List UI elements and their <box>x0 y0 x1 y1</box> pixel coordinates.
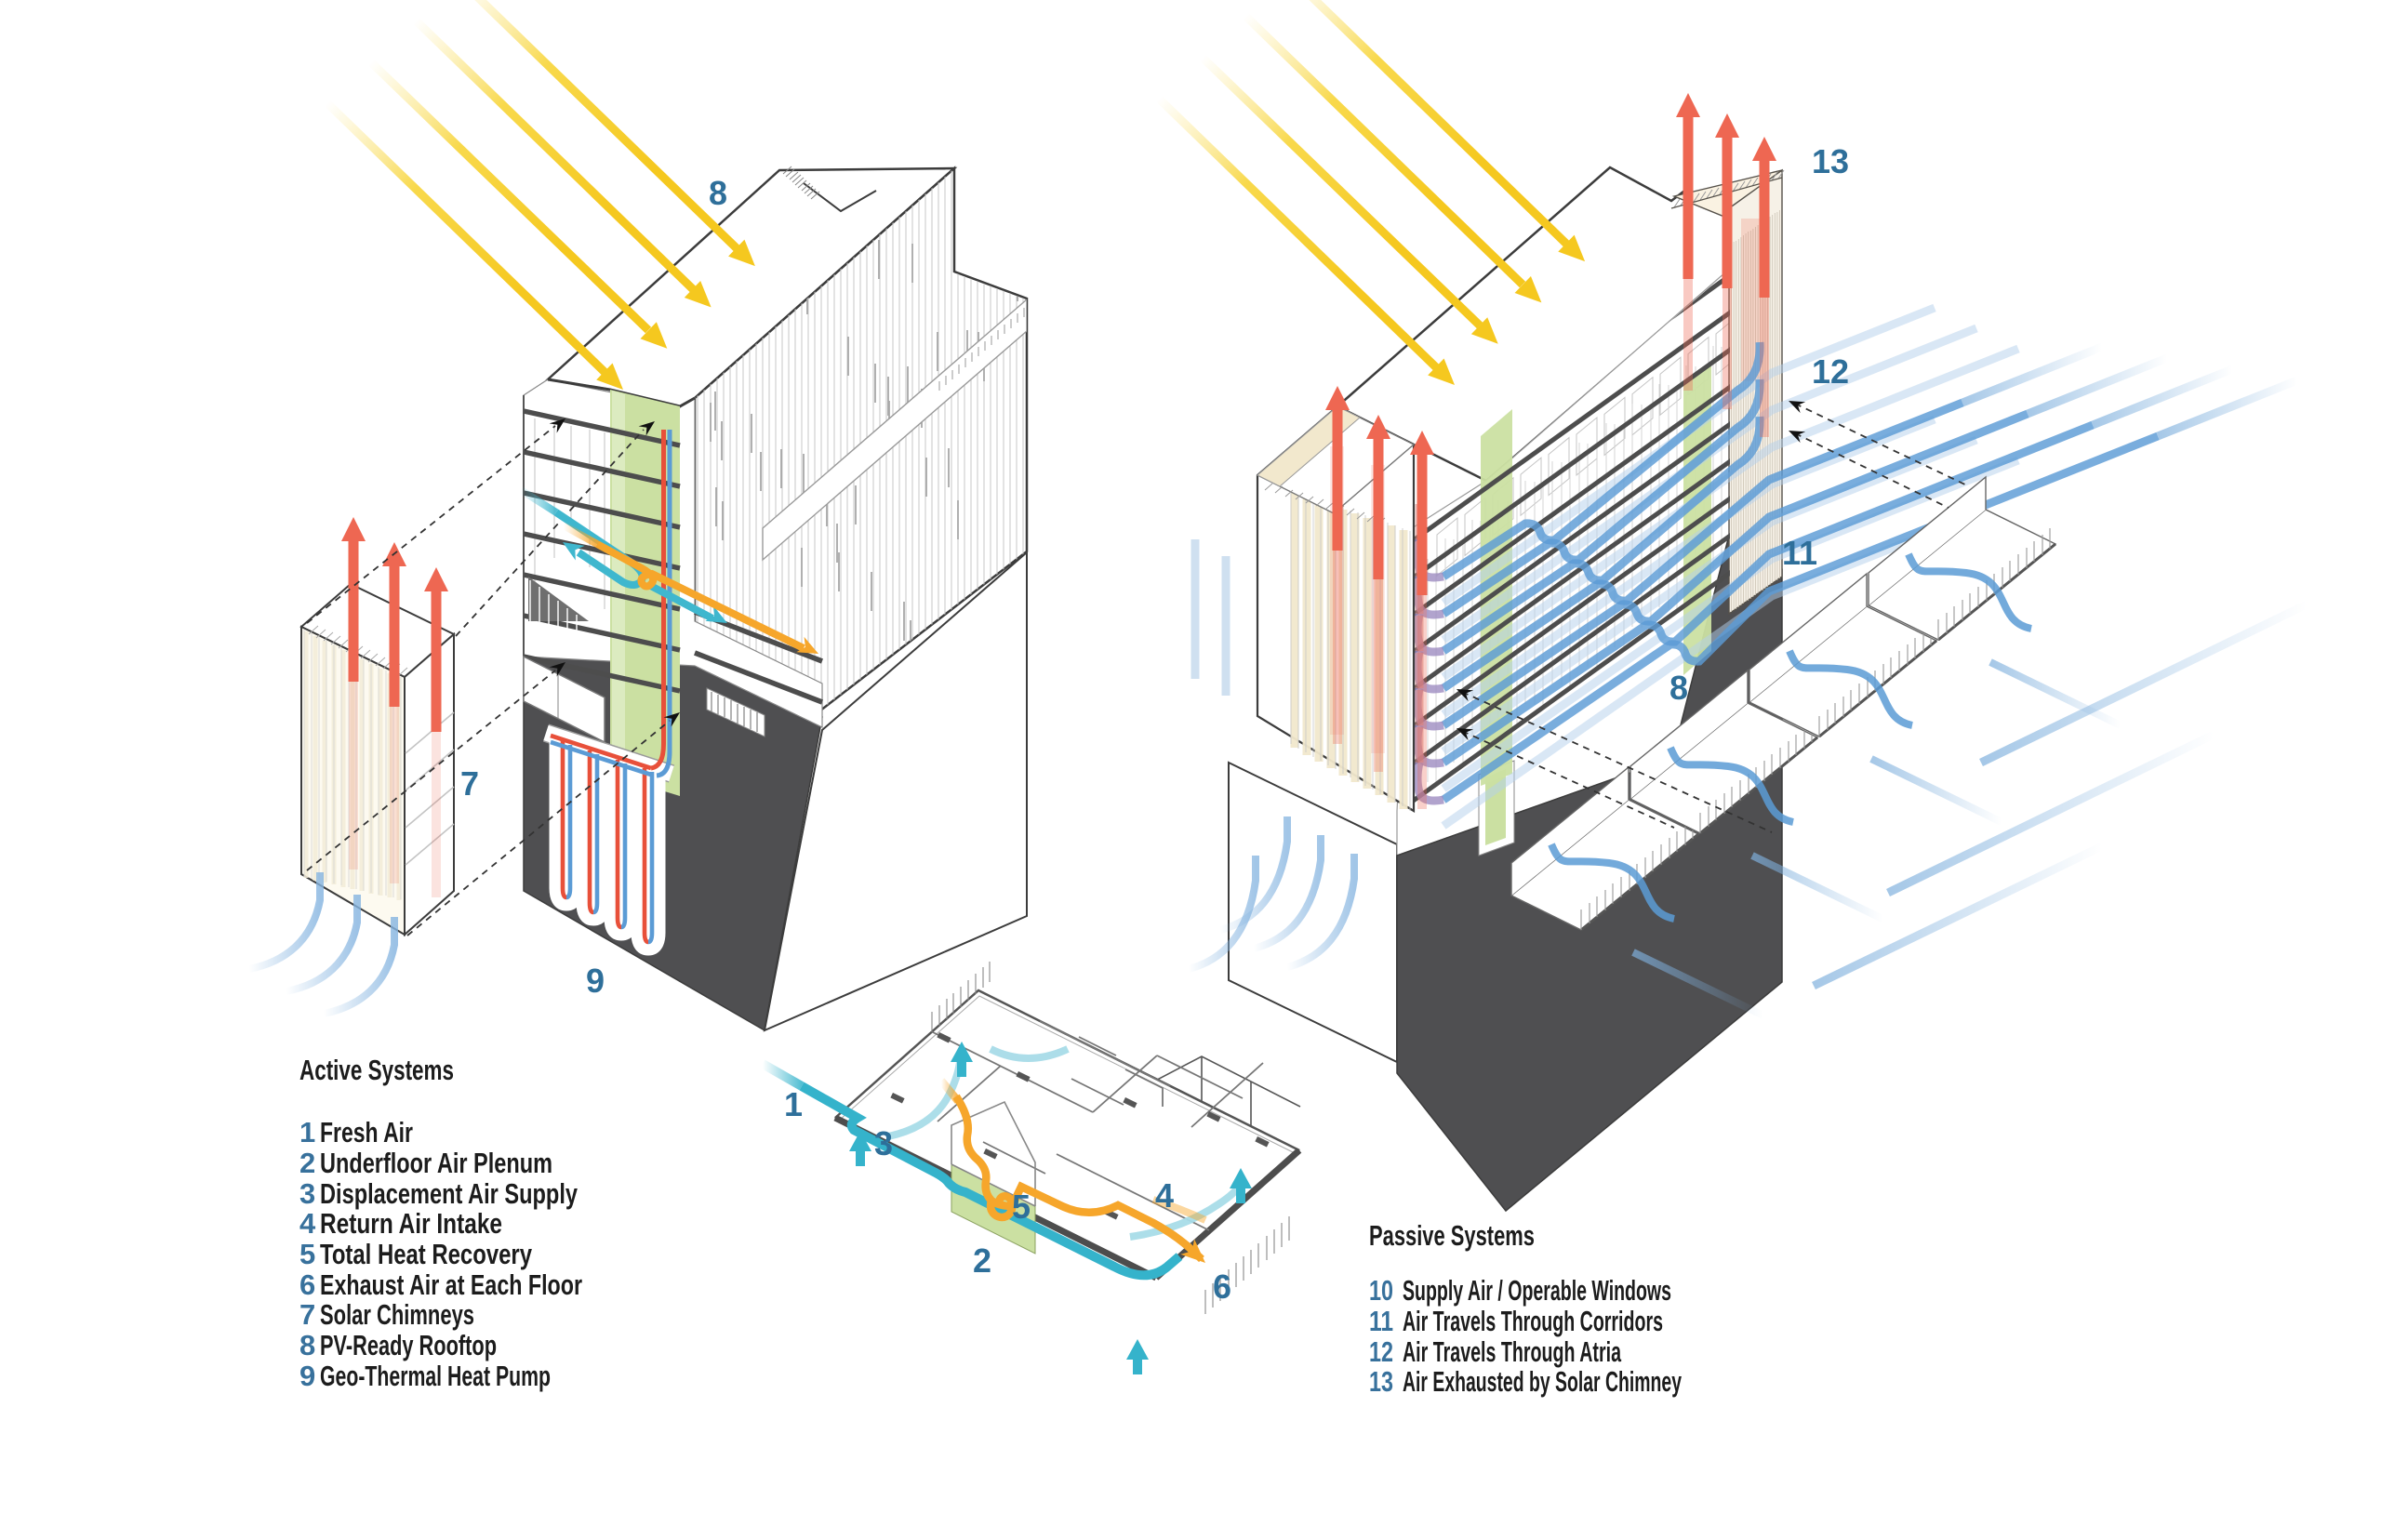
svg-text:Supply Air / Operable Windows: Supply Air / Operable Windows <box>1403 1274 1671 1307</box>
svg-text:9: 9 <box>586 962 605 1000</box>
svg-text:Return Air Intake: Return Air Intake <box>320 1207 502 1240</box>
svg-text:12: 12 <box>1369 1335 1393 1368</box>
svg-text:Passive Systems: Passive Systems <box>1369 1219 1535 1252</box>
svg-text:Air Travels Through Corridors: Air Travels Through Corridors <box>1403 1305 1663 1337</box>
svg-text:5: 5 <box>299 1238 315 1270</box>
svg-text:1: 1 <box>784 1085 803 1123</box>
svg-text:PV-Ready Rooftop: PV-Ready Rooftop <box>320 1329 497 1361</box>
svg-text:2: 2 <box>973 1241 991 1280</box>
svg-text:Air Travels Through Atria: Air Travels Through Atria <box>1403 1335 1621 1368</box>
svg-text:3: 3 <box>299 1177 315 1210</box>
svg-text:4: 4 <box>299 1207 316 1240</box>
svg-text:11: 11 <box>1369 1305 1393 1337</box>
svg-text:8: 8 <box>709 174 727 212</box>
svg-text:Solar Chimneys: Solar Chimneys <box>320 1298 474 1331</box>
svg-text:6: 6 <box>1213 1268 1231 1306</box>
svg-text:13: 13 <box>1369 1365 1393 1398</box>
svg-text:5: 5 <box>1012 1188 1031 1226</box>
svg-text:Fresh Air: Fresh Air <box>320 1116 413 1148</box>
svg-text:Displacement Air Supply: Displacement Air Supply <box>320 1177 579 1210</box>
svg-text:Geo-Thermal Heat Pump: Geo-Thermal Heat Pump <box>320 1360 551 1392</box>
svg-text:8: 8 <box>299 1329 315 1361</box>
svg-text:Active Systems: Active Systems <box>299 1054 454 1086</box>
svg-text:12: 12 <box>1812 352 1849 391</box>
svg-text:Total Heat Recovery: Total Heat Recovery <box>320 1238 533 1270</box>
svg-text:7: 7 <box>460 764 479 803</box>
svg-text:1: 1 <box>299 1116 315 1148</box>
svg-text:Exhaust Air at Each Floor: Exhaust Air at Each Floor <box>320 1268 582 1301</box>
svg-text:Air Exhausted by Solar Chimney: Air Exhausted by Solar Chimney <box>1403 1365 1682 1398</box>
svg-text:Underfloor Air Plenum: Underfloor Air Plenum <box>320 1147 552 1179</box>
svg-text:6: 6 <box>299 1268 315 1301</box>
svg-text:9: 9 <box>299 1360 315 1392</box>
svg-text:2: 2 <box>299 1147 315 1179</box>
svg-text:13: 13 <box>1812 142 1849 180</box>
svg-text:7: 7 <box>299 1298 315 1331</box>
svg-text:10: 10 <box>1369 1274 1393 1307</box>
svg-text:8: 8 <box>1669 669 1688 707</box>
svg-text:3: 3 <box>874 1124 893 1162</box>
svg-text:4: 4 <box>1155 1176 1174 1215</box>
svg-text:11: 11 <box>1782 534 1817 572</box>
